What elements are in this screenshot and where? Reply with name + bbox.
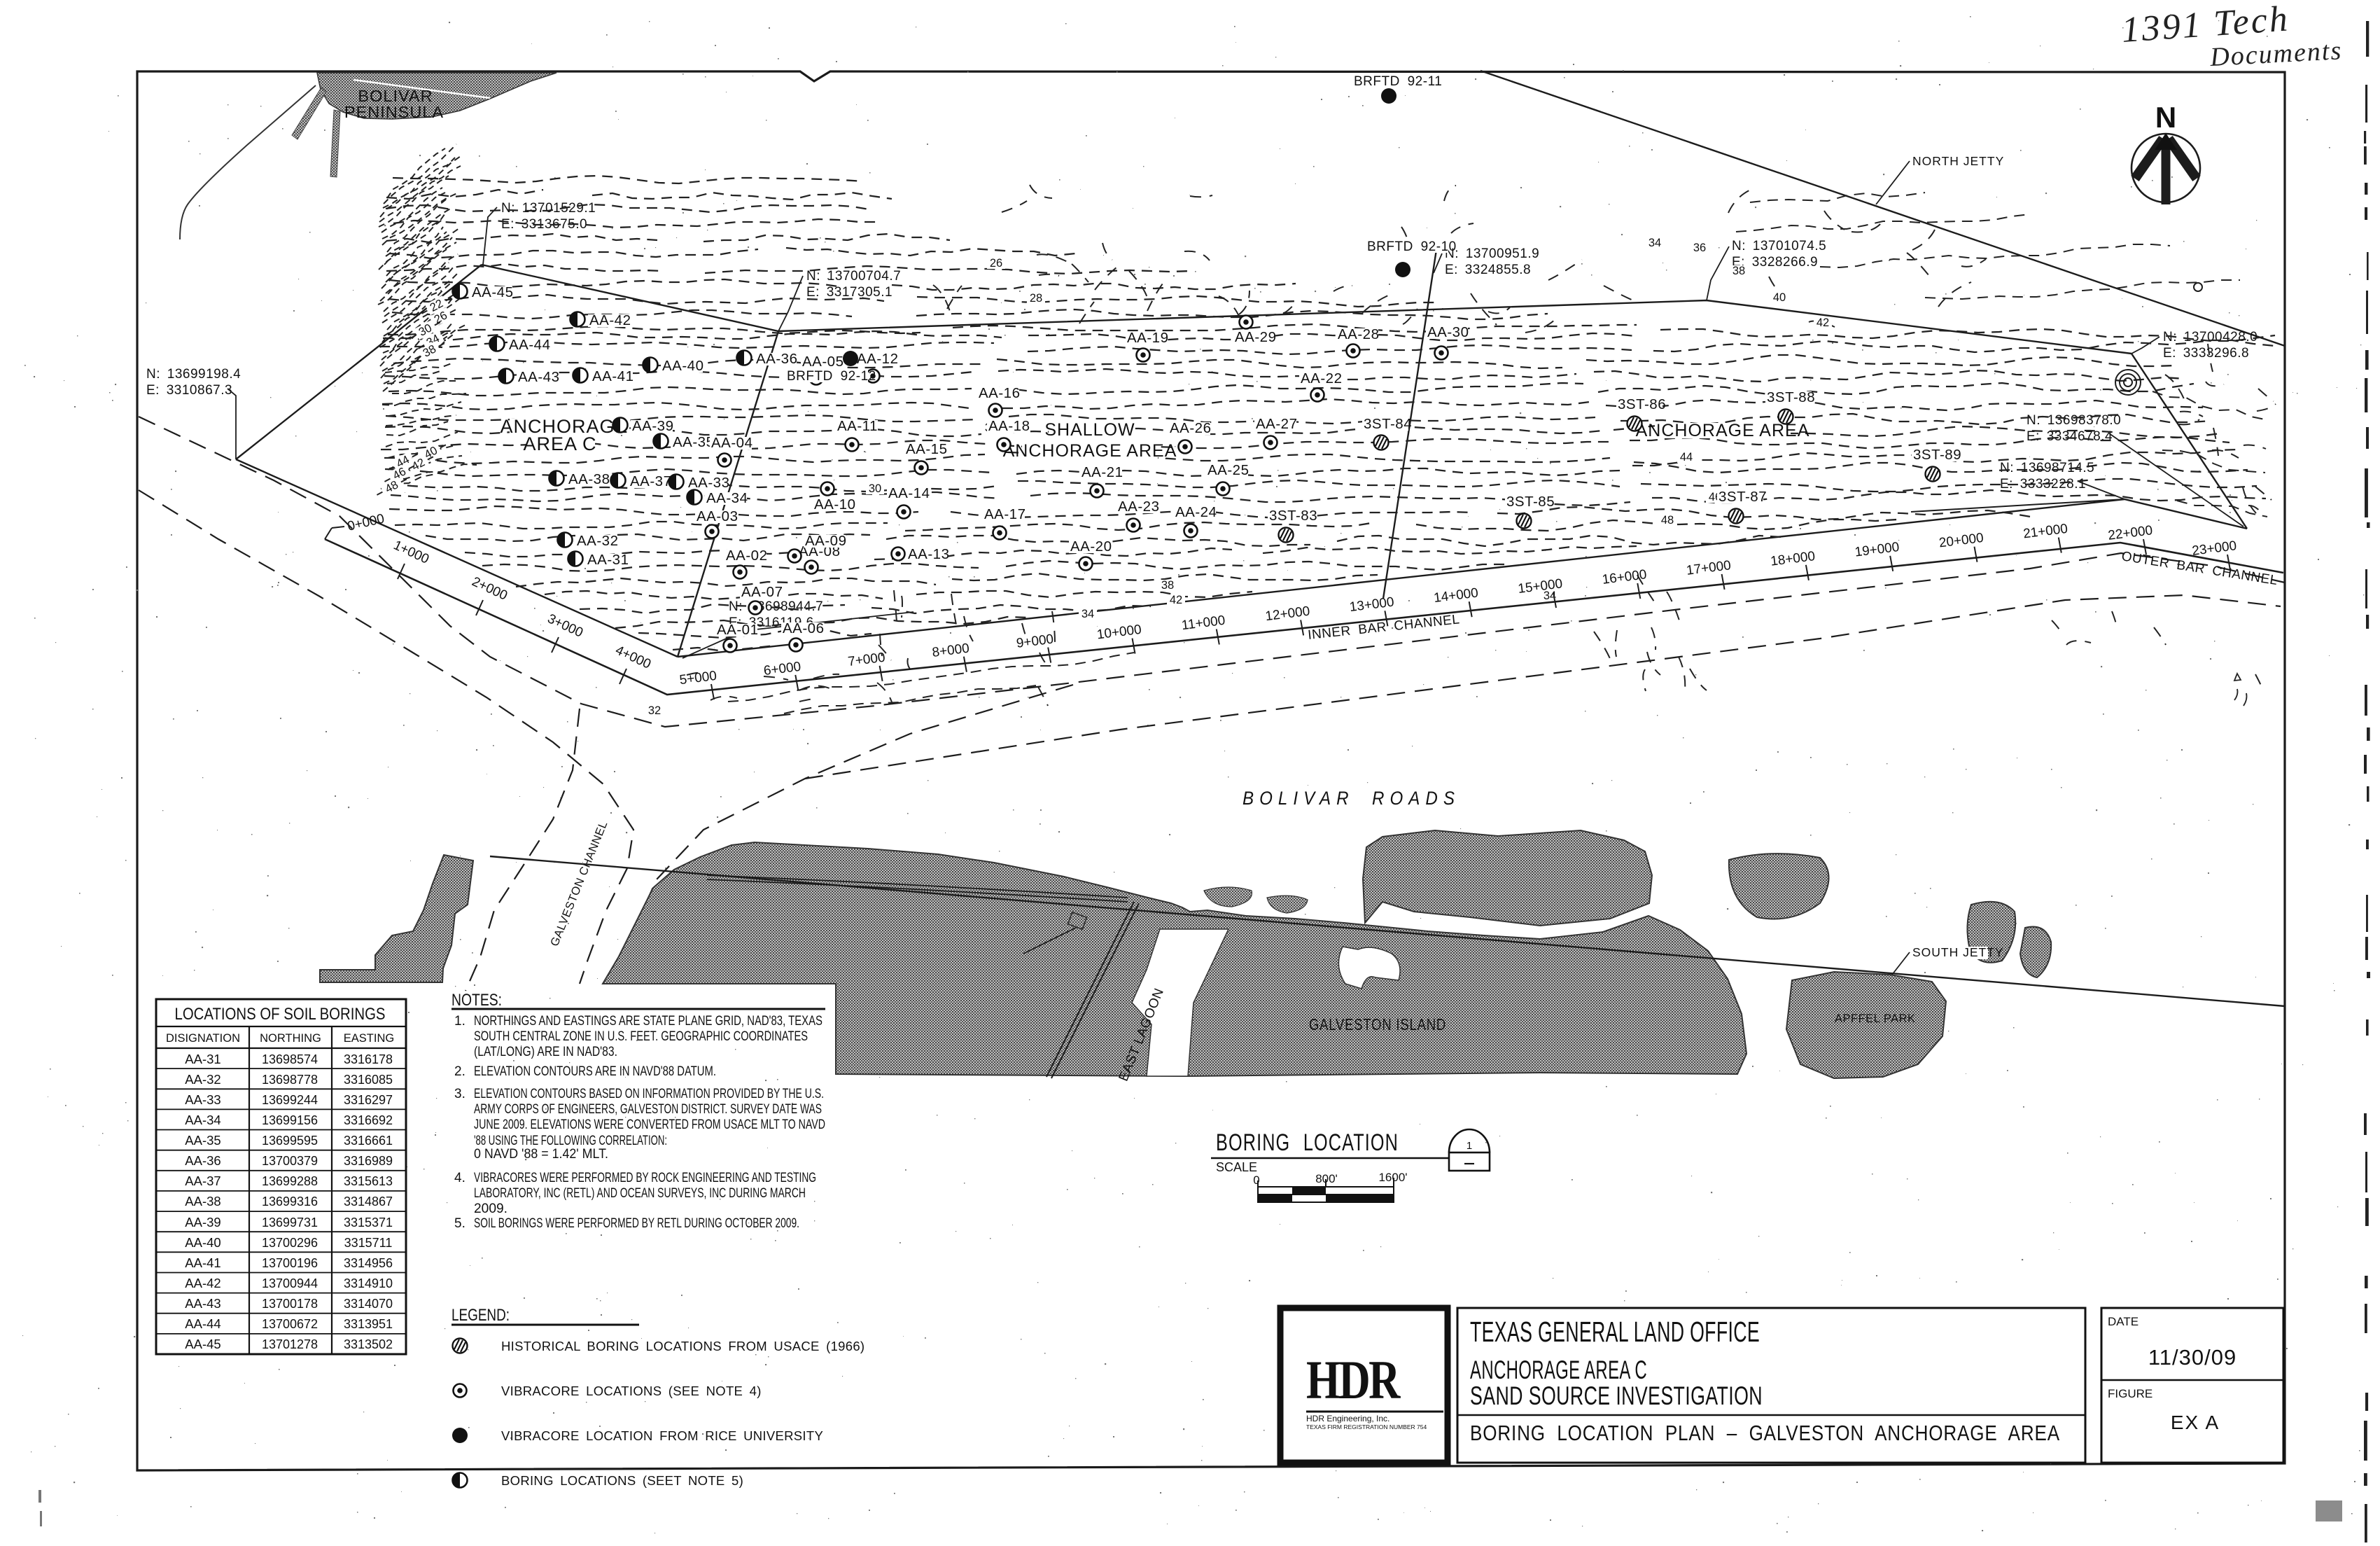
svg-text:0 NAVD '88 = 1.42' MLT.: 0 NAVD '88 = 1.42' MLT.: [474, 1147, 608, 1162]
svg-text:AA-03: AA-03: [696, 508, 738, 524]
svg-text:N: 13701529.1: N: 13701529.1: [501, 201, 596, 216]
svg-text:26: 26: [990, 257, 1002, 270]
svg-text:AA-10: AA-10: [814, 496, 855, 513]
svg-text:NOTES:: NOTES:: [451, 991, 502, 1010]
svg-text:3313951: 3313951: [344, 1317, 393, 1331]
svg-text:E: 3324855.8: E: 3324855.8: [1445, 263, 1531, 277]
svg-text:AA-37: AA-37: [185, 1174, 220, 1188]
svg-text:2.: 2.: [454, 1064, 465, 1079]
svg-text:AA-13: AA-13: [908, 546, 949, 562]
svg-text:34: 34: [1081, 608, 1094, 620]
svg-text:AA-04: AA-04: [711, 435, 752, 451]
svg-text:13699595: 13699595: [262, 1134, 318, 1148]
svg-text:AA-12: AA-12: [857, 351, 898, 367]
svg-text:AA-35: AA-35: [185, 1133, 220, 1148]
svg-text:AA-43: AA-43: [185, 1296, 220, 1311]
svg-text:FIGURE: FIGURE: [2108, 1387, 2152, 1400]
svg-text:AA-45: AA-45: [472, 284, 513, 300]
svg-text:AA-37: AA-37: [630, 473, 671, 489]
svg-text:N: 13698378.0: N: 13698378.0: [2026, 413, 2121, 428]
svg-text:AA-24: AA-24: [1175, 504, 1217, 520]
svg-text:AA-36: AA-36: [185, 1153, 220, 1168]
svg-text:AA-20: AA-20: [1070, 538, 1112, 555]
svg-text:3316661: 3316661: [344, 1134, 393, 1148]
svg-text:3ST-83: 3ST-83: [1269, 508, 1317, 524]
svg-text:TEXAS GENERAL LAND OFFICE: TEXAS GENERAL LAND OFFICE: [1470, 1316, 1760, 1348]
svg-text:SAND SOURCE INVESTIGATION: SAND SOURCE INVESTIGATION: [1470, 1381, 1763, 1410]
svg-text:AA-29: AA-29: [1235, 329, 1276, 345]
svg-text:AA-09: AA-09: [805, 533, 846, 549]
svg-text:AA-06: AA-06: [783, 620, 824, 636]
svg-text:13700296: 13700296: [262, 1236, 318, 1250]
svg-text:EX A: EX A: [2171, 1412, 2220, 1433]
svg-text:1: 1: [1466, 1140, 1472, 1152]
svg-text:ANCHORAGE AREA: ANCHORAGE AREA: [1003, 441, 1177, 461]
svg-text:BRFTD 92-12: BRFTD 92-12: [787, 369, 876, 384]
svg-text:13701278: 13701278: [262, 1337, 318, 1351]
svg-text:NORTH JETTY: NORTH JETTY: [1912, 154, 2004, 168]
svg-text:AA-36: AA-36: [756, 351, 797, 367]
svg-text:AA-35: AA-35: [673, 434, 714, 450]
svg-text:AA-25: AA-25: [1207, 462, 1249, 478]
svg-text:13699244: 13699244: [262, 1093, 318, 1107]
svg-text:ELEVATION CONTOURS ARE IN NAVD: ELEVATION CONTOURS ARE IN NAVD'88 DATUM.: [474, 1064, 716, 1079]
svg-text:AA-33: AA-33: [185, 1092, 220, 1107]
svg-text:3316178: 3316178: [344, 1052, 393, 1066]
svg-text:3ST-89: 3ST-89: [1913, 447, 1961, 463]
svg-text:3314910: 3314910: [344, 1276, 393, 1290]
svg-text:GALVESTON ISLAND: GALVESTON ISLAND: [1309, 1015, 1446, 1033]
svg-text:13699288: 13699288: [262, 1174, 318, 1188]
svg-text:PENINSULA: PENINSULA: [344, 103, 444, 121]
svg-text:13698574: 13698574: [262, 1052, 318, 1066]
svg-text:AA-40: AA-40: [662, 358, 703, 374]
svg-text:AA-44: AA-44: [185, 1316, 220, 1331]
svg-text:BORING LOCATION PLAN – GALVEST: BORING LOCATION PLAN – GALVESTON ANCHORA…: [1470, 1421, 2060, 1445]
svg-text:LOCATIONS OF SOIL BORINGS: LOCATIONS OF SOIL BORINGS: [175, 1005, 386, 1024]
svg-text:13699156: 13699156: [262, 1113, 318, 1127]
svg-text:AA-45: AA-45: [185, 1337, 220, 1351]
svg-text:13700944: 13700944: [262, 1276, 318, 1290]
svg-text:N: 13700951.9: N: 13700951.9: [1445, 246, 1539, 261]
svg-text:3315613: 3315613: [344, 1174, 393, 1188]
svg-text:EASTING: EASTING: [344, 1032, 394, 1045]
svg-text:11/30/09: 11/30/09: [2148, 1345, 2236, 1370]
svg-text:SOUTH JETTY: SOUTH JETTY: [1912, 945, 2004, 959]
svg-text:AA-01: AA-01: [717, 622, 758, 638]
svg-text:3313502: 3313502: [344, 1337, 393, 1351]
svg-text:32: 32: [648, 704, 661, 717]
svg-text:13700672: 13700672: [262, 1317, 318, 1331]
svg-text:BOLIVAR ROADS: BOLIVAR ROADS: [1242, 788, 1460, 809]
svg-text:AA-39: AA-39: [185, 1215, 220, 1230]
svg-text:SOUTH CENTRAL ZONE IN U.S. FEE: SOUTH CENTRAL ZONE IN U.S. FEET. GEOGRAP…: [474, 1029, 808, 1044]
svg-text:48: 48: [1661, 514, 1674, 527]
svg-text:AA-39: AA-39: [632, 418, 673, 434]
svg-text:E: 3317305.1: E: 3317305.1: [806, 285, 892, 300]
svg-text:0: 0: [1253, 1174, 1259, 1187]
svg-text:42: 42: [1816, 316, 1829, 329]
svg-text:3ST-86: 3ST-86: [1618, 396, 1666, 412]
svg-text:3315711: 3315711: [344, 1236, 393, 1250]
svg-text:'88 USING THE FOLLOWING CORREL: '88 USING THE FOLLOWING CORRELATION:: [474, 1134, 667, 1148]
svg-text:AA-42: AA-42: [589, 312, 631, 328]
svg-text:3ST-84: 3ST-84: [1364, 416, 1412, 432]
svg-text:HDR Engineering, Inc.: HDR Engineering, Inc.: [1306, 1414, 1389, 1423]
svg-text:AA-11: AA-11: [837, 418, 878, 434]
svg-text:3314956: 3314956: [344, 1256, 393, 1270]
svg-text:AA-32: AA-32: [577, 533, 618, 549]
svg-text:13700178: 13700178: [262, 1297, 318, 1311]
svg-text:SOIL BORINGS WERE PERFORMED BY: SOIL BORINGS WERE PERFORMED BY RETL DURI…: [474, 1216, 799, 1231]
svg-text:DATE: DATE: [2108, 1315, 2138, 1328]
svg-text:DISIGNATION: DISIGNATION: [166, 1032, 240, 1045]
svg-text:AA-32: AA-32: [185, 1072, 220, 1087]
svg-text:3316085: 3316085: [344, 1073, 393, 1087]
svg-text:AA-17: AA-17: [984, 506, 1025, 522]
svg-text:AA-34: AA-34: [706, 490, 748, 506]
svg-text:38: 38: [1732, 265, 1745, 277]
svg-text:NORTHINGS AND EASTINGS ARE STA: NORTHINGS AND EASTINGS ARE STATE PLANE G…: [474, 1014, 822, 1029]
svg-text:AA-02: AA-02: [726, 548, 767, 564]
svg-text:HISTORICAL BORING LOCATIONS FR: HISTORICAL BORING LOCATIONS FROM USACE (…: [501, 1339, 864, 1353]
svg-text:AA-38: AA-38: [568, 471, 610, 487]
svg-text:AA-05: AA-05: [802, 354, 843, 370]
svg-text:N: 13699198.4: N: 13699198.4: [146, 367, 241, 382]
svg-text:AA-41: AA-41: [592, 368, 633, 384]
svg-text:JUNE 2009. ELEVATIONS WERE CON: JUNE 2009. ELEVATIONS WERE CONVERTED FRO…: [474, 1117, 825, 1132]
svg-text:3316692: 3316692: [344, 1113, 393, 1127]
svg-text:BRFTD 92-10: BRFTD 92-10: [1367, 239, 1457, 254]
svg-text:VIBRACORE LOCATION FROM RICE U: VIBRACORE LOCATION FROM RICE UNIVERSITY: [501, 1428, 823, 1443]
svg-text:NORTHING: NORTHING: [260, 1032, 321, 1045]
svg-text:N: 13700428.0: N: 13700428.0: [2163, 330, 2257, 344]
svg-text:AREA C: AREA C: [523, 433, 596, 454]
svg-text:LEGEND:: LEGEND:: [451, 1306, 510, 1325]
svg-text:AA-38: AA-38: [185, 1194, 220, 1209]
svg-text:AA-27: AA-27: [1256, 416, 1297, 432]
svg-text:VIBRACORES WERE PERFORMED BY R: VIBRACORES WERE PERFORMED BY ROCK ENGINE…: [474, 1171, 816, 1185]
svg-text:3.: 3.: [454, 1087, 465, 1101]
svg-text:HDR: HDR: [1306, 1349, 1401, 1410]
svg-text:13700379: 13700379: [262, 1154, 318, 1168]
svg-text:3ST-87: 3ST-87: [1718, 489, 1767, 505]
svg-text:BORING LOCATIONS (SEET NOTE 5): BORING LOCATIONS (SEET NOTE 5): [501, 1473, 743, 1488]
svg-text:5.: 5.: [454, 1216, 465, 1231]
svg-text:AA-14: AA-14: [888, 485, 930, 501]
svg-text:38: 38: [1161, 579, 1174, 592]
svg-text:13699316: 13699316: [262, 1195, 318, 1209]
svg-text:ANCHORAGE AREA C: ANCHORAGE AREA C: [1470, 1356, 1647, 1384]
svg-text:AA-15: AA-15: [906, 441, 947, 457]
svg-text:SCALE: SCALE: [1216, 1160, 1257, 1174]
svg-text:36: 36: [1693, 242, 1706, 254]
svg-text:AA-41: AA-41: [185, 1255, 220, 1270]
svg-text:3316989: 3316989: [344, 1154, 393, 1168]
svg-text:N: N: [2155, 101, 2176, 134]
svg-text:13699731: 13699731: [262, 1216, 318, 1230]
svg-text:42: 42: [1170, 594, 1182, 606]
svg-text:2009.: 2009.: [474, 1202, 507, 1216]
svg-text:AA-44: AA-44: [509, 337, 550, 353]
svg-text:34: 34: [1648, 237, 1661, 249]
svg-text:30: 30: [869, 482, 881, 495]
svg-text:AA-42: AA-42: [185, 1276, 220, 1290]
svg-text:AA-31: AA-31: [185, 1052, 220, 1066]
svg-text:BORING LOCATION: BORING LOCATION: [1216, 1129, 1399, 1156]
svg-text:AA-30: AA-30: [1427, 324, 1469, 340]
svg-text:ELEVATION CONTOURS BASED ON IN: ELEVATION CONTOURS BASED ON INFORMATION …: [474, 1087, 824, 1101]
svg-text:3314070: 3314070: [344, 1297, 393, 1311]
svg-text:E: 3333296.8: E: 3333296.8: [2163, 346, 2249, 361]
svg-text:AA-28: AA-28: [1338, 326, 1379, 342]
svg-text:44: 44: [1680, 451, 1693, 464]
svg-text:E: 3310867.3: E: 3310867.3: [146, 383, 232, 398]
svg-text:N: 13700704.7: N: 13700704.7: [806, 269, 901, 284]
svg-text:SHALLOW: SHALLOW: [1044, 420, 1135, 440]
svg-text:3314867: 3314867: [344, 1195, 393, 1209]
svg-text:AA-31: AA-31: [587, 552, 629, 568]
svg-text:AA-43: AA-43: [518, 369, 559, 385]
svg-text:TEXAS FIRM REGISTRATION NUMBER: TEXAS FIRM REGISTRATION NUMBER 754: [1306, 1423, 1427, 1430]
svg-text:3315371: 3315371: [344, 1216, 393, 1230]
svg-text:13700196: 13700196: [262, 1256, 318, 1270]
svg-text:BRFTD 92-11: BRFTD 92-11: [1354, 74, 1442, 89]
svg-text:AA-33: AA-33: [688, 475, 729, 491]
svg-text:AA-40: AA-40: [185, 1235, 220, 1250]
svg-text:(LAT/LONG) ARE IN NAD'83.: (LAT/LONG) ARE IN NAD'83.: [474, 1045, 617, 1059]
svg-text:ARMY CORPS OF ENGINEERS, GALVE: ARMY CORPS OF ENGINEERS, GALVESTON DISTR…: [474, 1102, 822, 1117]
svg-text:APFFEL PARK: APFFEL PARK: [1835, 1012, 1916, 1025]
svg-text:AA-26: AA-26: [1170, 420, 1211, 436]
svg-text:AA-18: AA-18: [988, 418, 1030, 434]
svg-text:VIBRACORE LOCATIONS (SEE NOTE: VIBRACORE LOCATIONS (SEE NOTE 4): [501, 1384, 762, 1398]
svg-text:40: 40: [1773, 291, 1786, 304]
svg-text:AA-22: AA-22: [1301, 370, 1342, 386]
svg-text:28: 28: [1030, 292, 1042, 305]
svg-text:3ST-85: 3ST-85: [1506, 494, 1555, 510]
svg-text:N: 13701074.5: N: 13701074.5: [1732, 239, 1826, 253]
svg-text:LABORATORY, INC (RETL) AND OCE: LABORATORY, INC (RETL) AND OCEAN SURVEYS…: [474, 1186, 806, 1201]
svg-text:4.: 4.: [454, 1171, 465, 1185]
svg-text:N: 13698714.5: N: 13698714.5: [2000, 461, 2094, 475]
svg-text:AA-23: AA-23: [1118, 499, 1159, 515]
svg-text:AA-21: AA-21: [1081, 464, 1123, 480]
svg-text:13698778: 13698778: [262, 1073, 318, 1087]
svg-text:3ST-88: 3ST-88: [1767, 389, 1815, 405]
svg-text:AA-07: AA-07: [741, 584, 783, 600]
svg-text:3316297: 3316297: [344, 1093, 393, 1107]
svg-text:AA-19: AA-19: [1127, 330, 1168, 346]
svg-text:AA-16: AA-16: [979, 385, 1020, 401]
svg-text:AA-34: AA-34: [185, 1113, 220, 1127]
svg-text:1.: 1.: [454, 1014, 465, 1029]
